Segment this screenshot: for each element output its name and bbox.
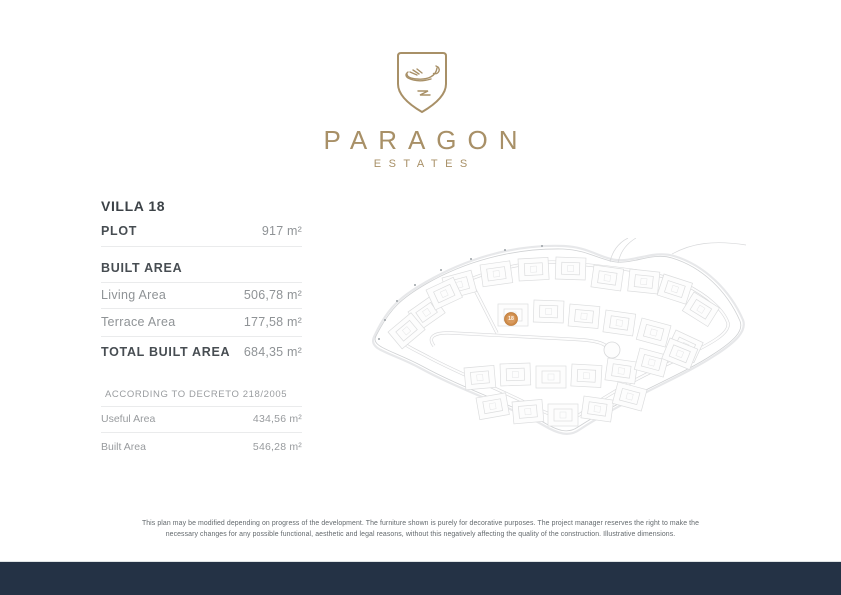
swan-icon	[406, 66, 439, 95]
villa-spec-panel: VILLA 18 PLOT 917 m² BUILT AREA Living A…	[101, 198, 302, 460]
decreto-built-area-row: Built Area 546,28 m²	[101, 433, 302, 460]
useful-area-row: Useful Area 434,56 m²	[101, 407, 302, 433]
villa-title: VILLA 18	[101, 198, 302, 214]
terrace-area-value: 177,58 m²	[244, 315, 302, 330]
living-area-row: Living Area 506,78 m²	[101, 283, 302, 309]
plot-label: PLOT	[101, 224, 137, 239]
useful-area-value: 434,56 m²	[253, 413, 302, 426]
disclaimer-line-2: necessary changes for any possible funct…	[0, 530, 841, 541]
disclaimer-line-1: This plan may be modified depending on p…	[0, 519, 841, 530]
villa-18-marker-label: 18	[508, 316, 514, 322]
decreto-built-area-value: 546,28 m²	[253, 441, 302, 454]
decreto-built-area-label: Built Area	[101, 441, 146, 454]
total-built-area-value: 684,35 m²	[244, 345, 302, 360]
total-built-area-row: TOTAL BUILT AREA 684,35 m²	[101, 337, 302, 360]
living-area-value: 506,78 m²	[244, 288, 302, 303]
plot-value: 917 m²	[262, 224, 302, 239]
disclaimer-text: This plan may be modified depending on p…	[0, 519, 841, 540]
living-area-label: Living Area	[101, 288, 166, 303]
terrace-area-row: Terrace Area 177,58 m²	[101, 309, 302, 337]
villa-18-marker: 18	[505, 313, 518, 326]
terrace-area-label: Terrace Area	[101, 315, 175, 330]
built-area-heading: BUILT AREA	[101, 261, 302, 283]
useful-area-label: Useful Area	[101, 413, 155, 426]
brochure-page: PARAGON ESTATES VILLA 18 PLOT 917 m² BUI…	[0, 0, 841, 595]
brand-subtitle: ESTATES	[0, 158, 841, 170]
shield-crest-icon	[395, 51, 449, 115]
cul-de-sac	[604, 342, 620, 358]
decreto-heading: ACCORDING TO DECRETO 218/2005	[101, 388, 302, 407]
plot-row: PLOT 917 m²	[101, 224, 302, 247]
footer-bar	[0, 562, 841, 595]
brand-name: PARAGON	[0, 125, 841, 156]
site-plan-map: 18	[372, 238, 747, 438]
total-built-area-label: TOTAL BUILT AREA	[101, 345, 230, 360]
